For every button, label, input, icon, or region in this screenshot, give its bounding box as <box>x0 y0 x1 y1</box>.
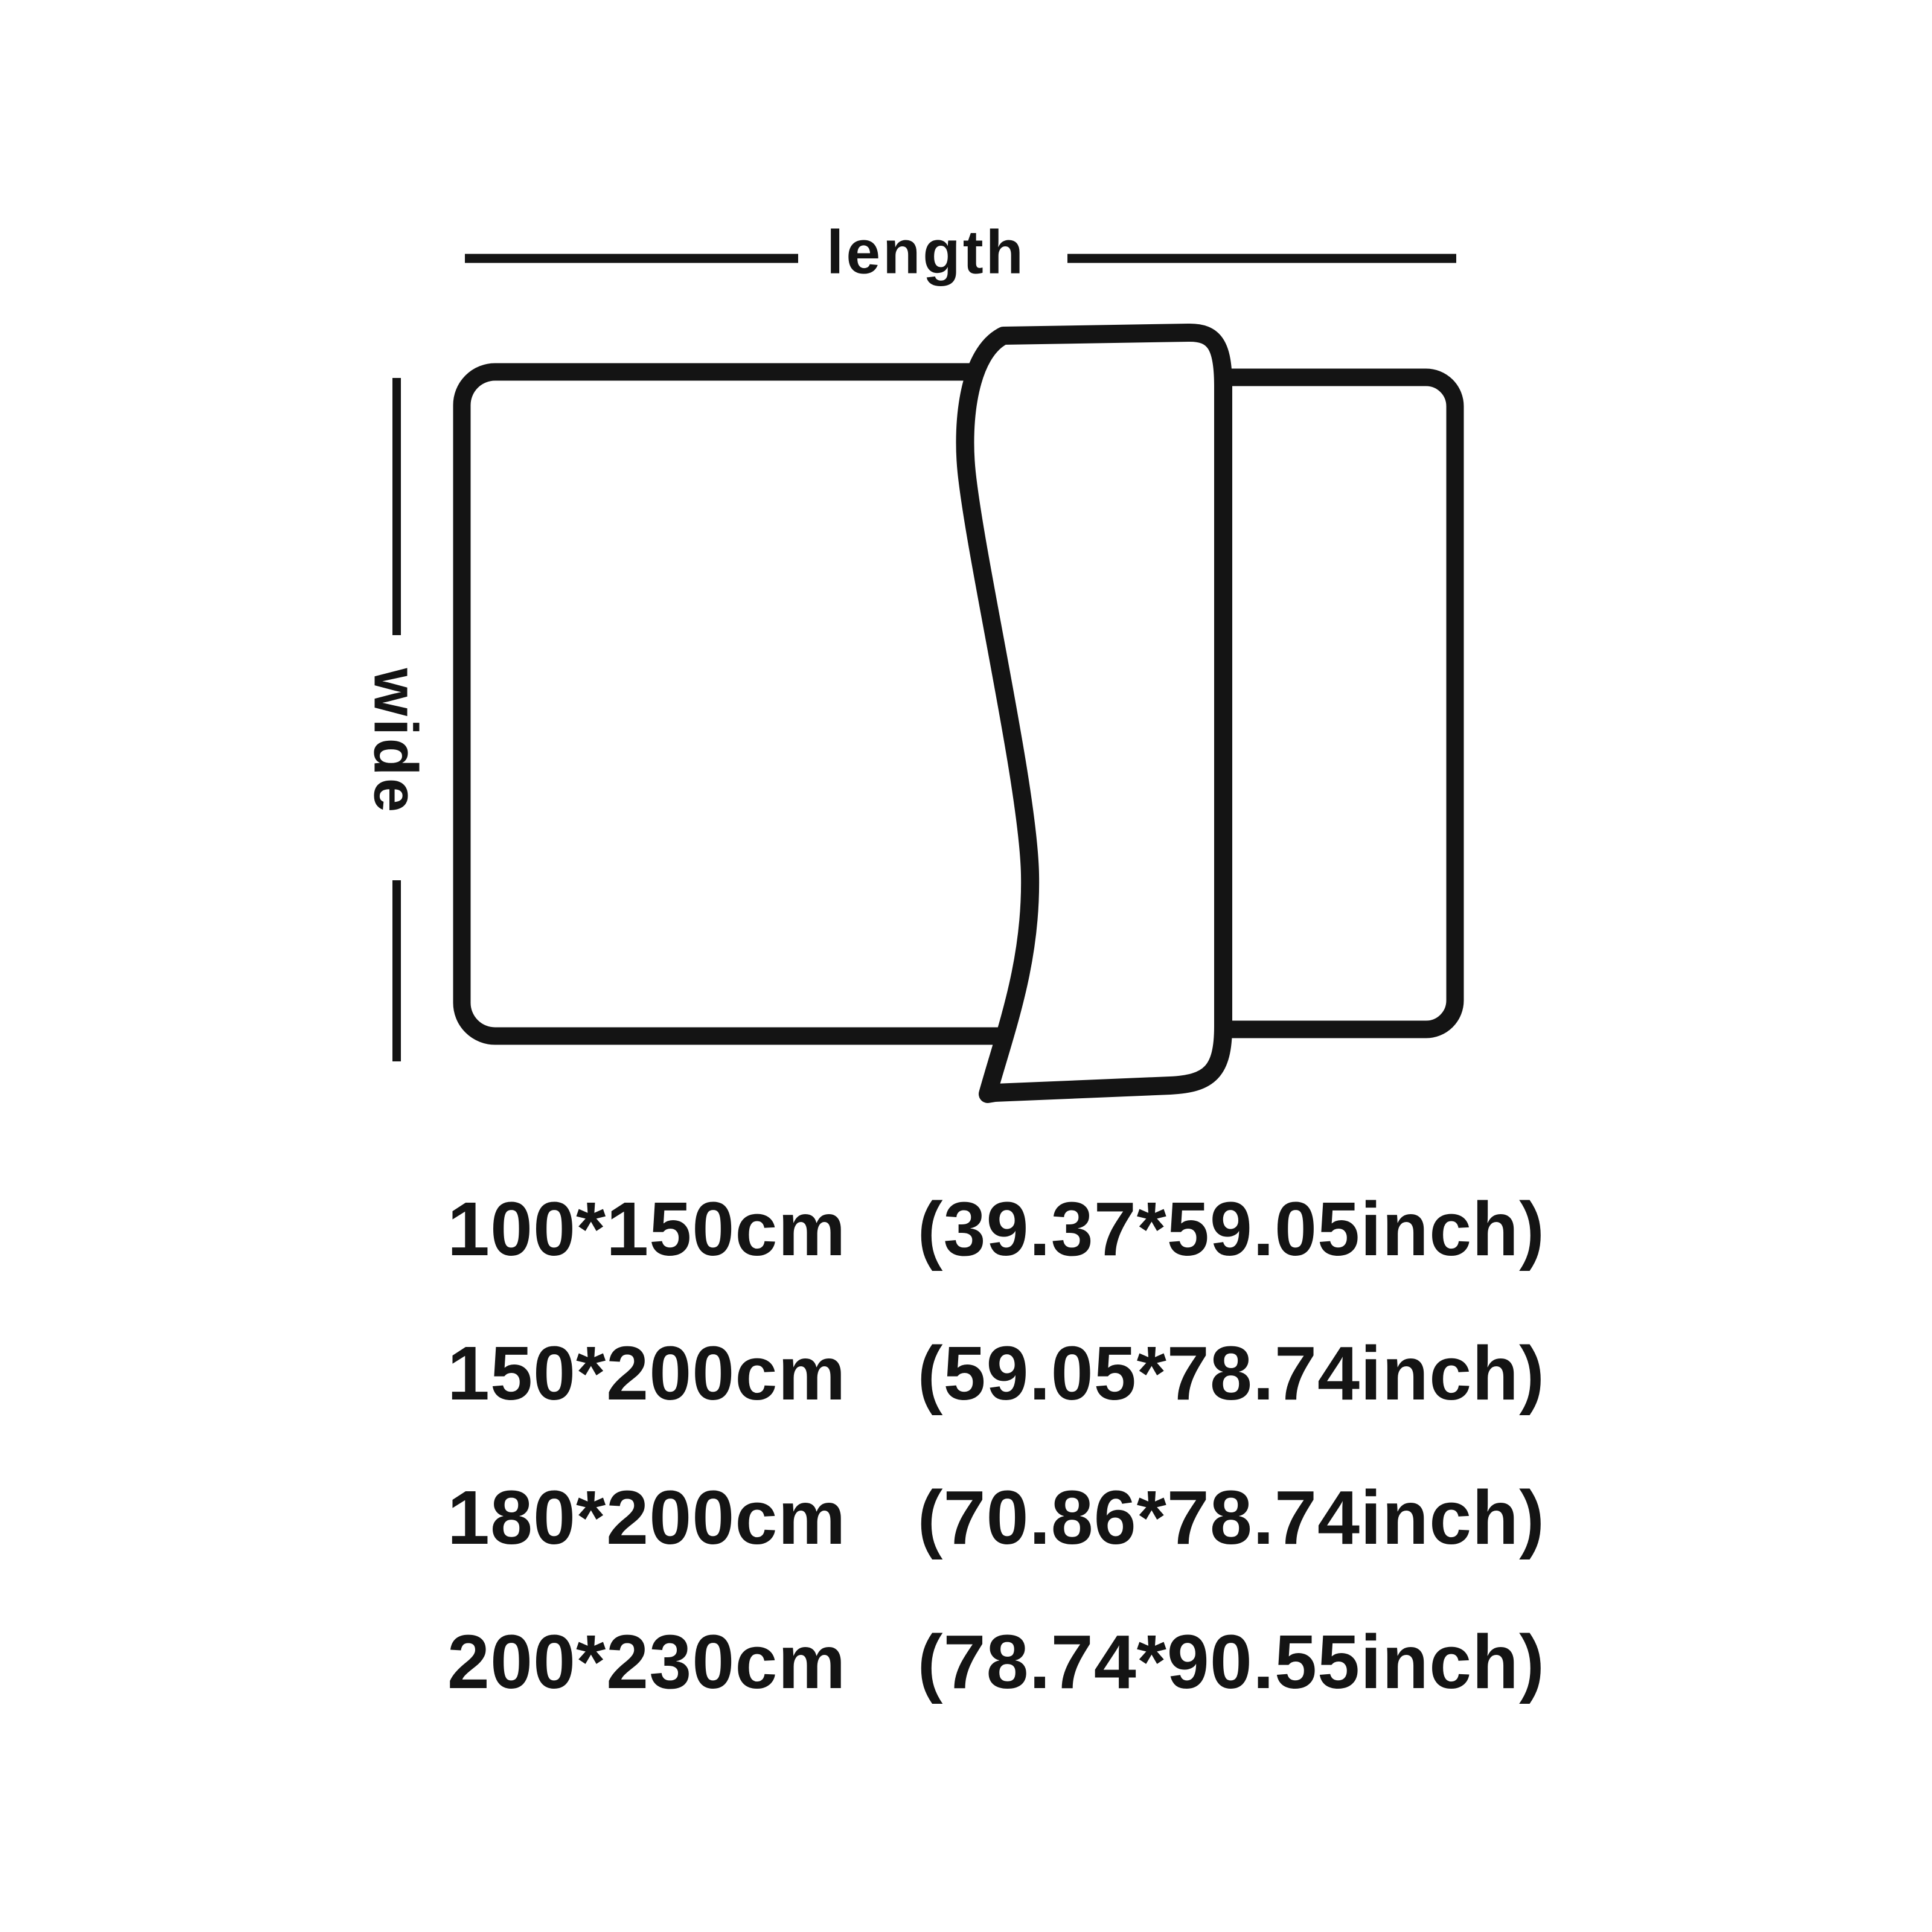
size-cm-value: 180*200cm <box>447 1474 846 1561</box>
size-cm-value: 200*230cm <box>447 1618 846 1706</box>
size-cm-value: 150*200cm <box>447 1329 846 1417</box>
size-options-list: 100*150cm (39.37*59.05inch) 150*200cm (5… <box>63 1179 1929 1712</box>
size-row: 200*230cm (78.74*90.55inch) <box>63 1611 1929 1712</box>
size-inch-value: (78.74*90.55inch) <box>918 1618 1546 1706</box>
size-row: 180*200cm (70.86*78.74inch) <box>63 1467 1929 1567</box>
length-dimension-label: length <box>827 217 1026 288</box>
size-cm-value: 100*150cm <box>447 1185 846 1273</box>
wide-dimension-label: wide <box>360 668 431 815</box>
size-chart-page: { "colors": { "ink": "#141414", "backgro… <box>0 0 1932 1932</box>
size-row: 150*200cm (59.05*78.74inch) <box>63 1323 1929 1423</box>
size-inch-value: (39.37*59.05inch) <box>918 1185 1546 1273</box>
size-row: 100*150cm (39.37*59.05inch) <box>63 1179 1929 1279</box>
size-inch-value: (70.86*78.74inch) <box>918 1474 1546 1561</box>
size-inch-value: (59.05*78.74inch) <box>918 1329 1546 1417</box>
